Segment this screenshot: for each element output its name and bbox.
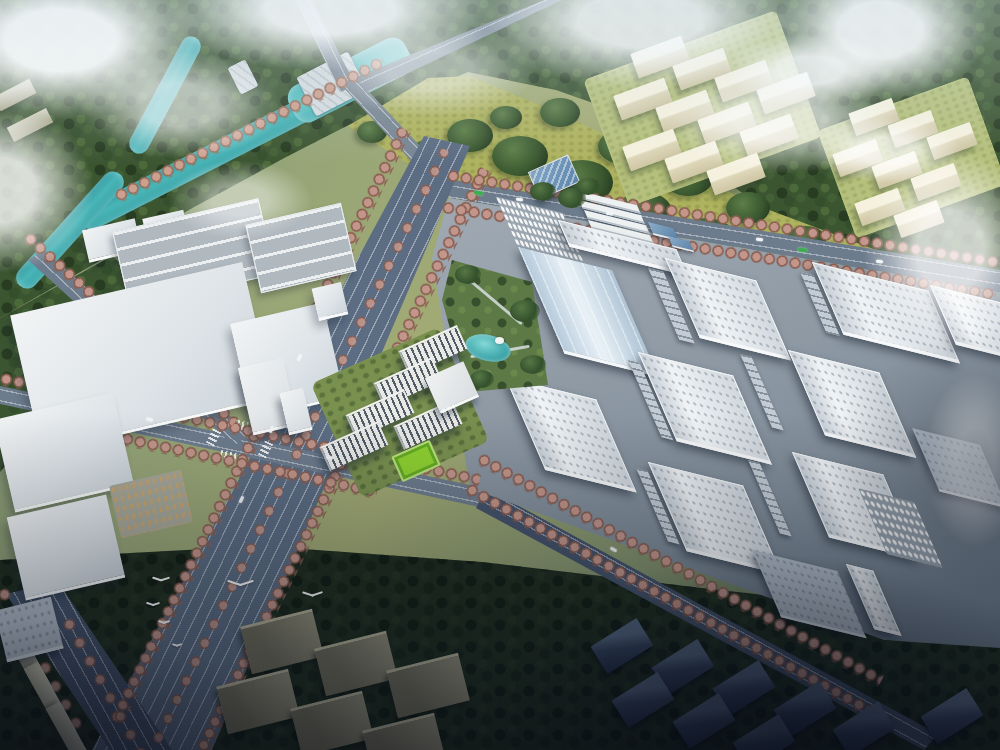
aerial-industrial-park-rendering: [0, 0, 1000, 750]
color-grade-corners: [0, 0, 1000, 750]
